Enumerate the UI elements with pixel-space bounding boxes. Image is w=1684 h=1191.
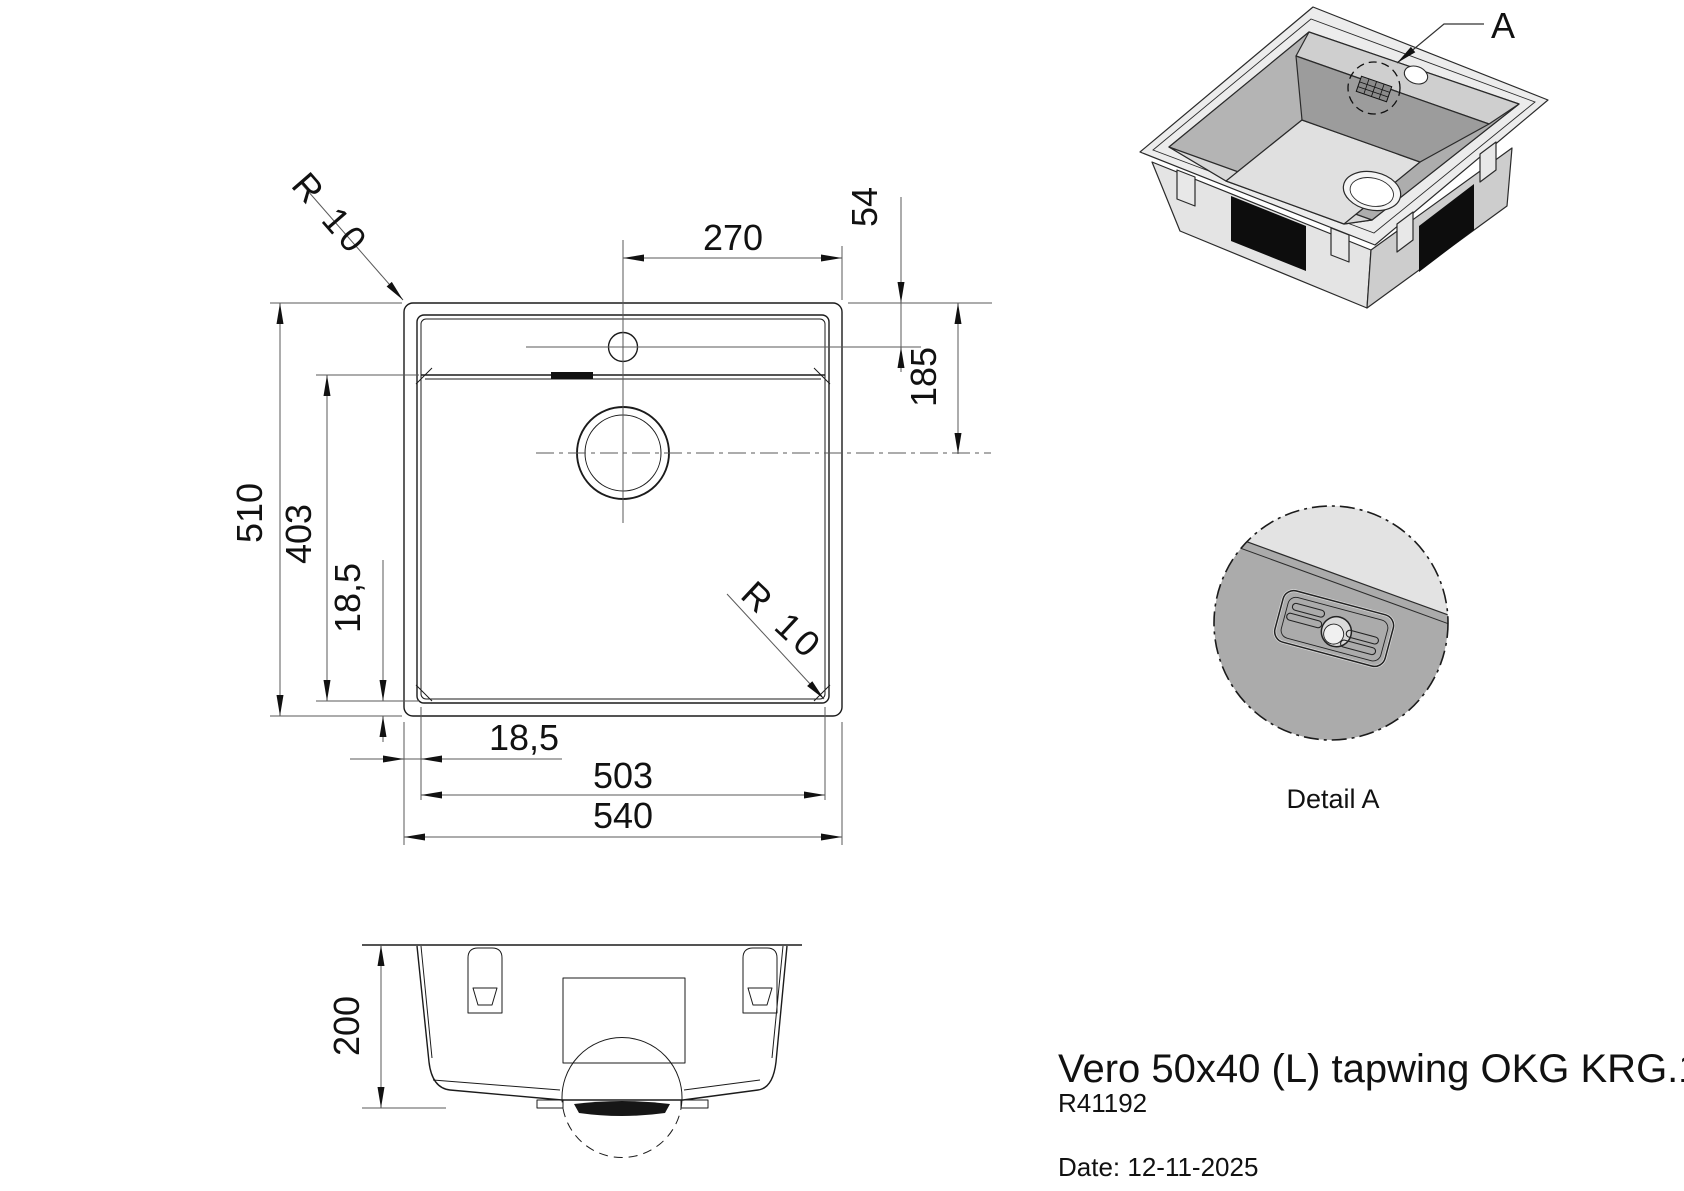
dim-label-54: 54 bbox=[844, 187, 885, 227]
radius-callout-outer: R 10 bbox=[284, 164, 403, 300]
mounting-clip-right bbox=[743, 948, 777, 1013]
mounting-clip-left bbox=[468, 948, 502, 1013]
bowl-corner-facet bbox=[416, 368, 432, 384]
drain-dome bbox=[562, 1038, 682, 1101]
tapwing-slot-mark bbox=[551, 372, 593, 379]
dim-tap-hole-offset-y: 54 bbox=[844, 187, 992, 372]
side-view: 200 bbox=[326, 945, 802, 1158]
dim-tap-hole-offset-x: 270 bbox=[623, 217, 842, 300]
detail-callout-label: A bbox=[1491, 5, 1515, 46]
dim-label-540: 540 bbox=[593, 795, 653, 836]
dim-label-503: 503 bbox=[593, 755, 653, 796]
isometric-view: A bbox=[1140, 5, 1548, 308]
dim-top-to-drain: 185 bbox=[903, 303, 962, 454]
dim-label-r10-outer: R 10 bbox=[284, 164, 378, 263]
bottom-tab-right bbox=[681, 1100, 708, 1108]
dim-label-185: 185 bbox=[903, 347, 944, 407]
shell-inner-line bbox=[433, 1080, 560, 1090]
bowl-corner-facet bbox=[814, 368, 830, 384]
drawing-sheet: 270 54 185 510 bbox=[0, 0, 1684, 1191]
dim-label-200: 200 bbox=[326, 996, 367, 1056]
dim-label-270: 270 bbox=[703, 217, 763, 258]
front-view-dimensions: 270 54 185 510 bbox=[229, 164, 992, 845]
article-code: R41192 bbox=[1058, 1088, 1147, 1118]
dim-label-18-5-bottom: 18,5 bbox=[489, 717, 559, 758]
sound-pad bbox=[563, 978, 685, 1063]
title-block: Vero 50x40 (L) tapwing OKG KRG.1 R41192 … bbox=[1058, 1047, 1684, 1182]
technical-drawing: 270 54 185 510 bbox=[0, 0, 1684, 1191]
detail-view-label: Detail A bbox=[1286, 784, 1379, 814]
product-name: Vero 50x40 (L) tapwing OKG KRG.1 bbox=[1058, 1047, 1684, 1091]
body-outline bbox=[417, 946, 787, 1100]
dim-bowl-depth: 403 bbox=[278, 375, 419, 701]
dim-label-18-5-left: 18,5 bbox=[327, 563, 368, 633]
dim-label-403: 403 bbox=[278, 504, 319, 564]
dim-overall-width: 540 bbox=[404, 795, 842, 841]
drawing-date: Date: 12-11-2025 bbox=[1058, 1152, 1258, 1182]
bottom-tab-left bbox=[537, 1100, 563, 1108]
front-view bbox=[404, 240, 991, 716]
clip-3d bbox=[1177, 170, 1195, 206]
dim-bowl-width: 503 bbox=[421, 755, 825, 799]
shell-inner-line bbox=[684, 1080, 760, 1090]
dim-rim-offset-left: 18,5 bbox=[327, 560, 387, 742]
detail-view: Detail A bbox=[1196, 480, 1462, 814]
dim-body-height: 200 bbox=[326, 945, 446, 1108]
drain-flange bbox=[574, 1101, 670, 1116]
dim-label-510: 510 bbox=[229, 483, 270, 543]
radius-callout-bowl: R 10 bbox=[727, 573, 832, 699]
